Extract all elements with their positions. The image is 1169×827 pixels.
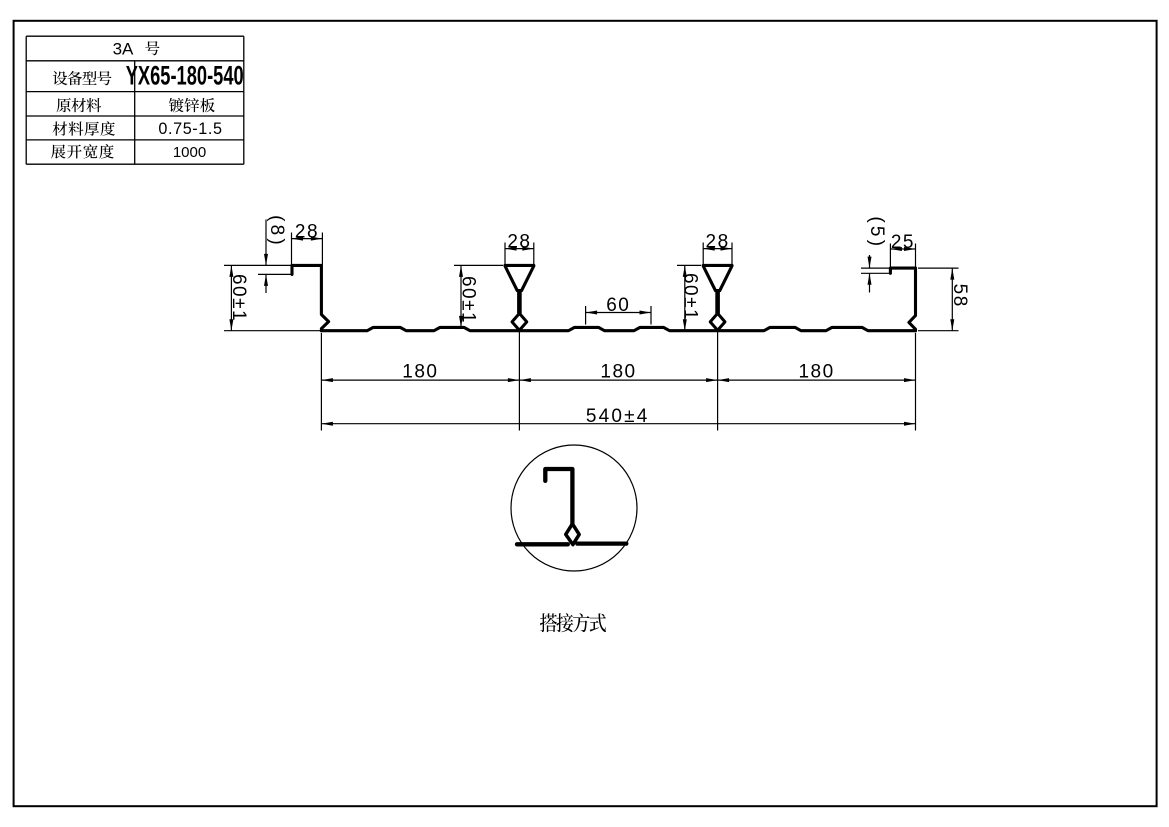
svg-text:540±4: 540±4	[586, 406, 650, 427]
svg-text:60±1: 60±1	[458, 276, 479, 324]
svg-text:28: 28	[295, 221, 319, 242]
svg-text:180: 180	[402, 361, 438, 382]
svg-text:(8): (8)	[266, 215, 287, 248]
svg-text:0.75-1.5: 0.75-1.5	[158, 120, 222, 138]
svg-text:YX65-180-540: YX65-180-540	[126, 60, 244, 90]
svg-text:3A: 3A	[113, 40, 134, 59]
svg-text:180: 180	[798, 361, 834, 382]
svg-text:(5): (5)	[866, 216, 887, 249]
svg-text:1000: 1000	[173, 144, 206, 161]
svg-text:28: 28	[706, 231, 730, 252]
svg-text:25: 25	[891, 232, 915, 253]
svg-text:180: 180	[600, 361, 636, 382]
svg-text:60: 60	[606, 295, 630, 316]
svg-text:28: 28	[507, 231, 531, 252]
svg-text:60±1: 60±1	[680, 273, 701, 321]
svg-text:58: 58	[949, 284, 970, 308]
svg-text:60±1: 60±1	[228, 274, 249, 322]
